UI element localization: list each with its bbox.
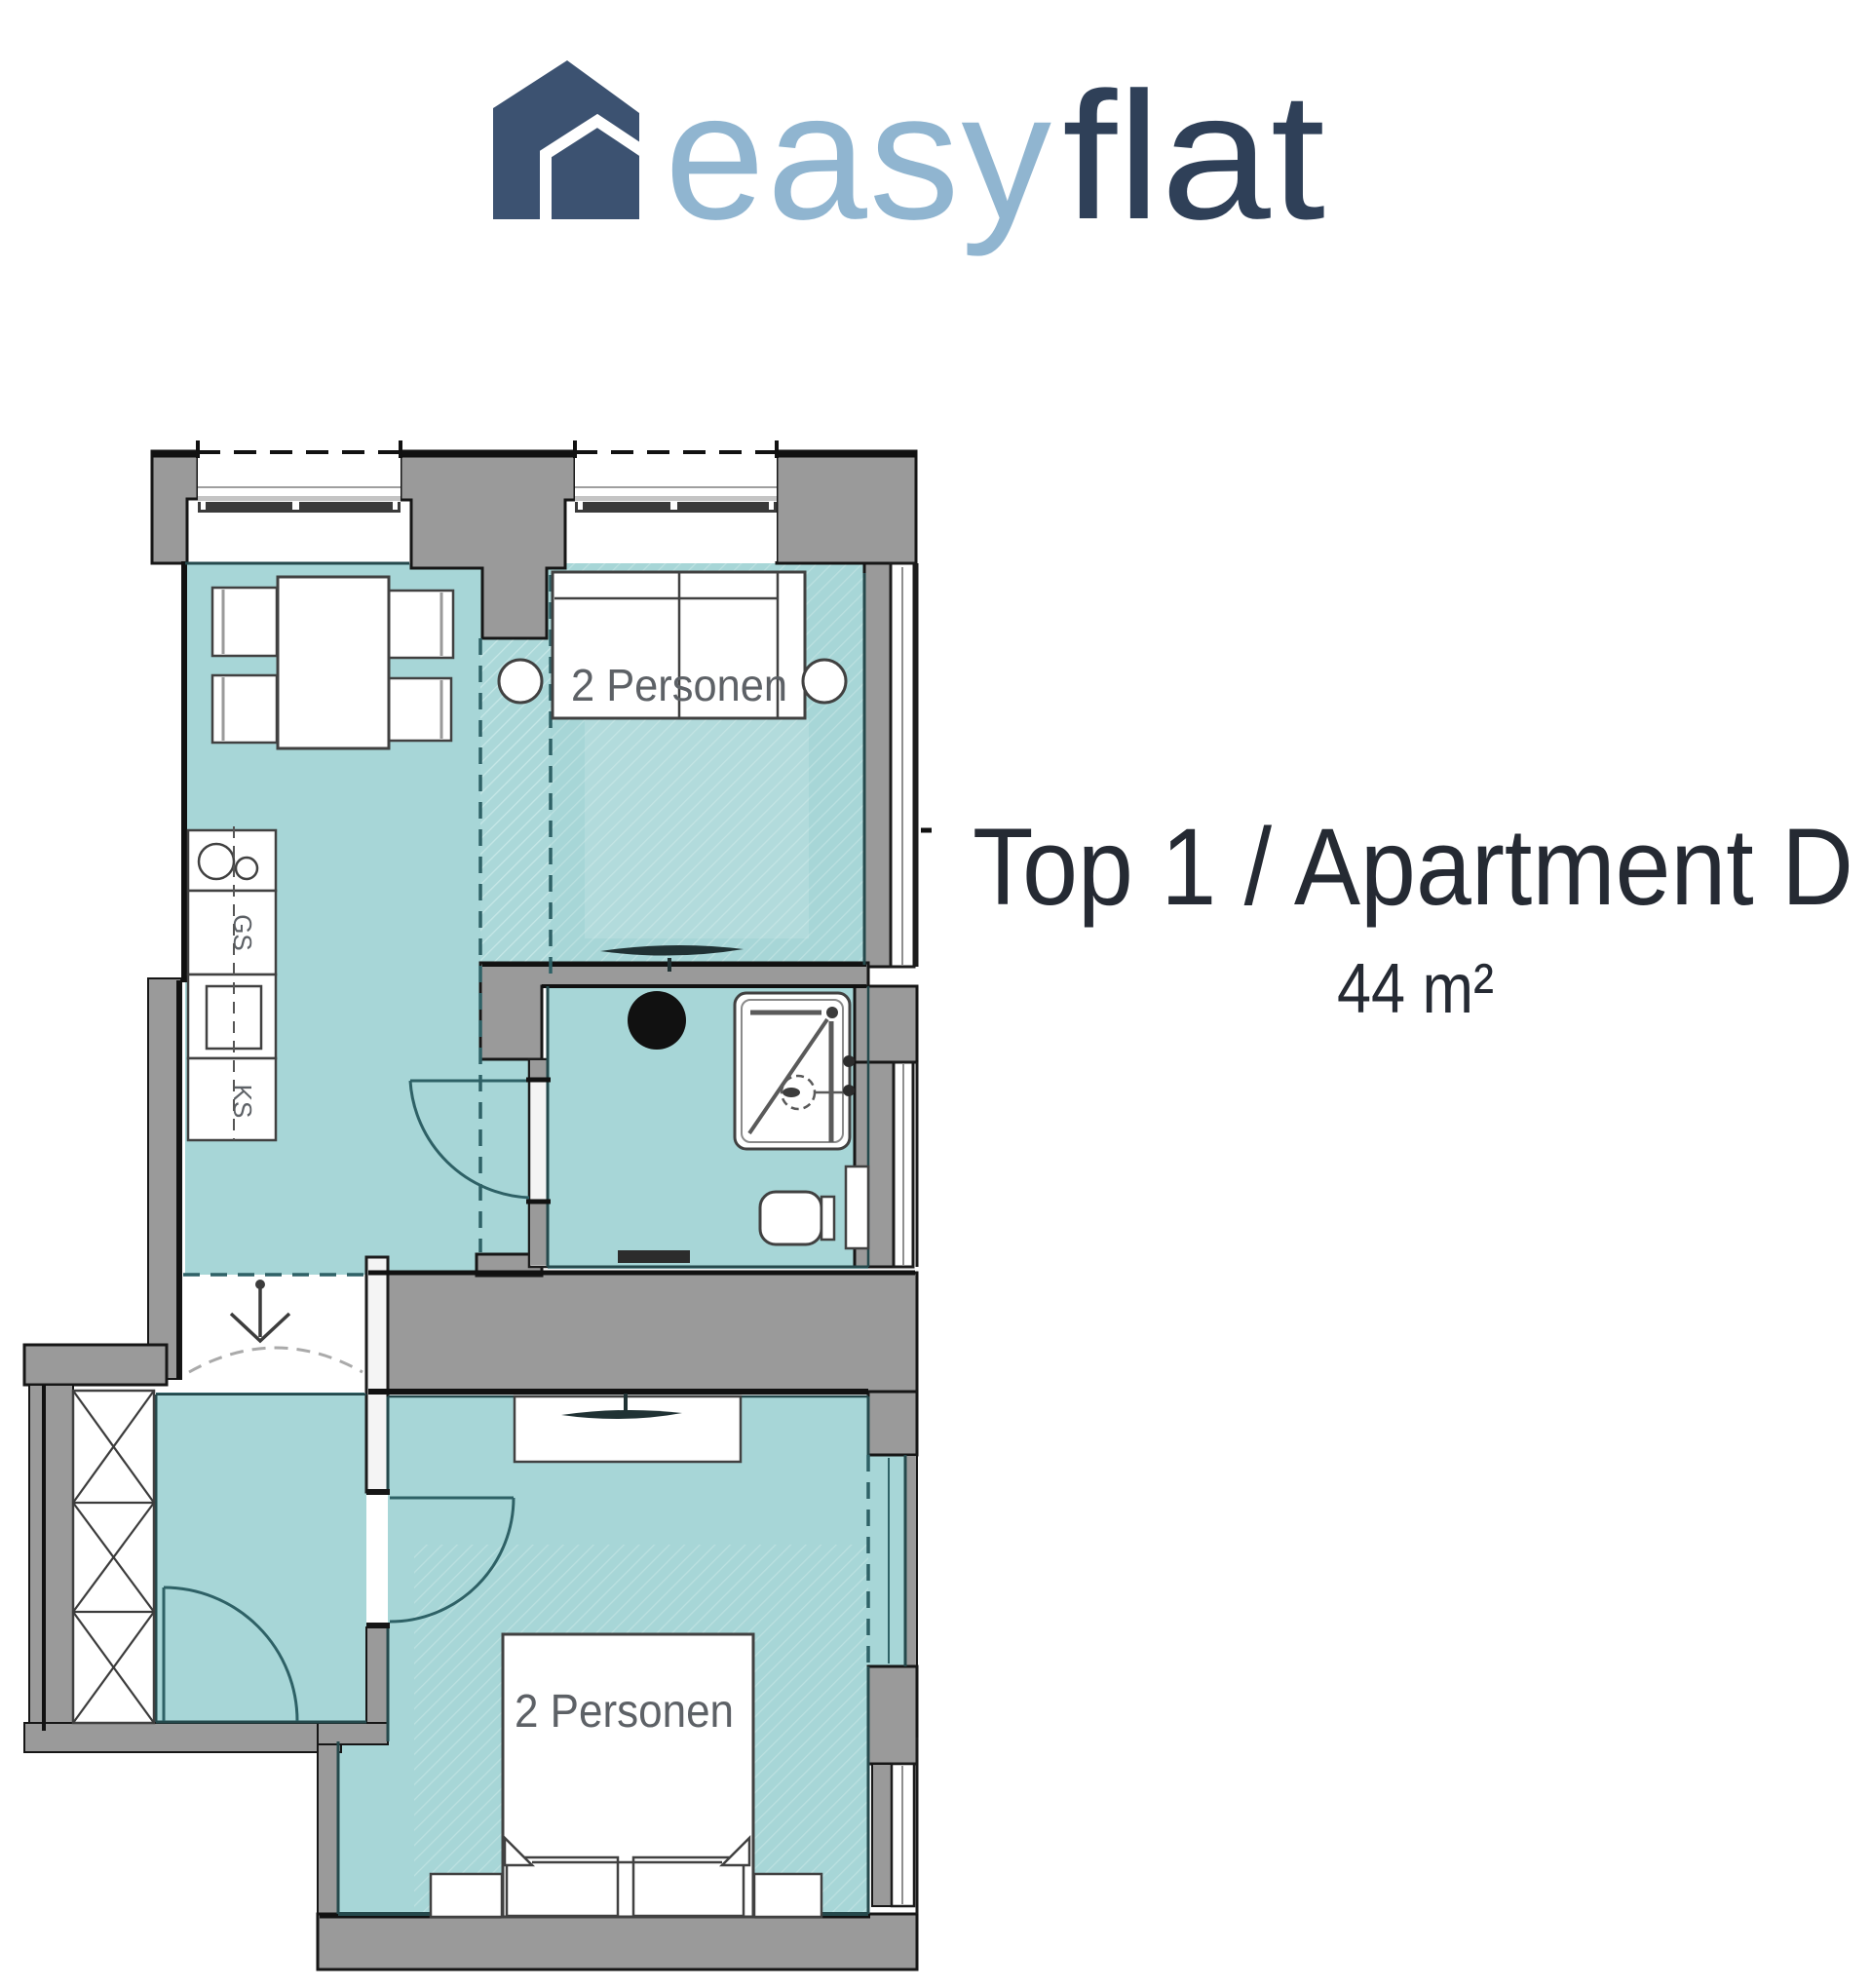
svg-text:Top 1 / Apartment D: Top 1 / Apartment D bbox=[973, 806, 1853, 928]
svg-text:GS: GS bbox=[228, 914, 257, 951]
svg-text:KS: KS bbox=[228, 1085, 257, 1119]
svg-text:2 Personen: 2 Personen bbox=[571, 660, 787, 710]
svg-text:44 m²: 44 m² bbox=[1337, 950, 1494, 1028]
svg-text:flat: flat bbox=[1062, 56, 1325, 257]
svg-text:easy: easy bbox=[665, 56, 1053, 257]
svg-text:2 Personen: 2 Personen bbox=[515, 1686, 734, 1738]
